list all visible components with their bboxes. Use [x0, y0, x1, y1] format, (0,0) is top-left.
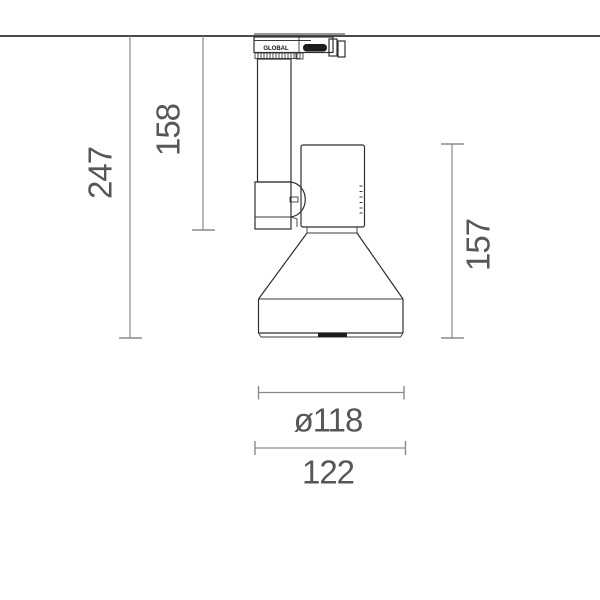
knurled-ring	[255, 53, 303, 59]
dim-head-height: 157	[441, 144, 497, 338]
head-side-vents	[360, 186, 363, 213]
track-adapter: GLOBAL	[254, 37, 345, 59]
technical-drawing: GLOBAL	[0, 0, 600, 600]
dim-247-label: 247	[82, 147, 119, 199]
adapter-end-block-2	[338, 41, 345, 57]
dim-overall-height: 247	[82, 36, 142, 338]
pivot-bracket	[255, 182, 291, 229]
dim-diffuser-diameter: ø118	[259, 386, 405, 439]
dim-122-label: 122	[302, 454, 354, 491]
dim-118-label: ø118	[294, 402, 363, 439]
rim-walls	[259, 299, 404, 333]
lens-aperture	[318, 333, 347, 338]
dim-overall-width: 122	[255, 441, 406, 491]
lamp-head	[259, 145, 404, 337]
drawing-canvas: GLOBAL	[0, 0, 600, 600]
neck-band	[307, 227, 357, 233]
hinge-lower-joint	[291, 217, 297, 227]
knurl-teeth	[258, 53, 297, 59]
knurl-band	[255, 53, 300, 59]
adapter-lock-lever	[303, 44, 327, 52]
stem-arm	[255, 59, 305, 229]
dim-157-label: 157	[460, 219, 497, 271]
head-housing	[301, 145, 365, 227]
stem-tube	[258, 59, 292, 182]
dim-158-label: 158	[150, 104, 187, 156]
dim-arm-height: 158	[150, 36, 215, 230]
adapter-brand-text: GLOBAL	[263, 46, 289, 52]
cone-sides	[259, 233, 404, 299]
